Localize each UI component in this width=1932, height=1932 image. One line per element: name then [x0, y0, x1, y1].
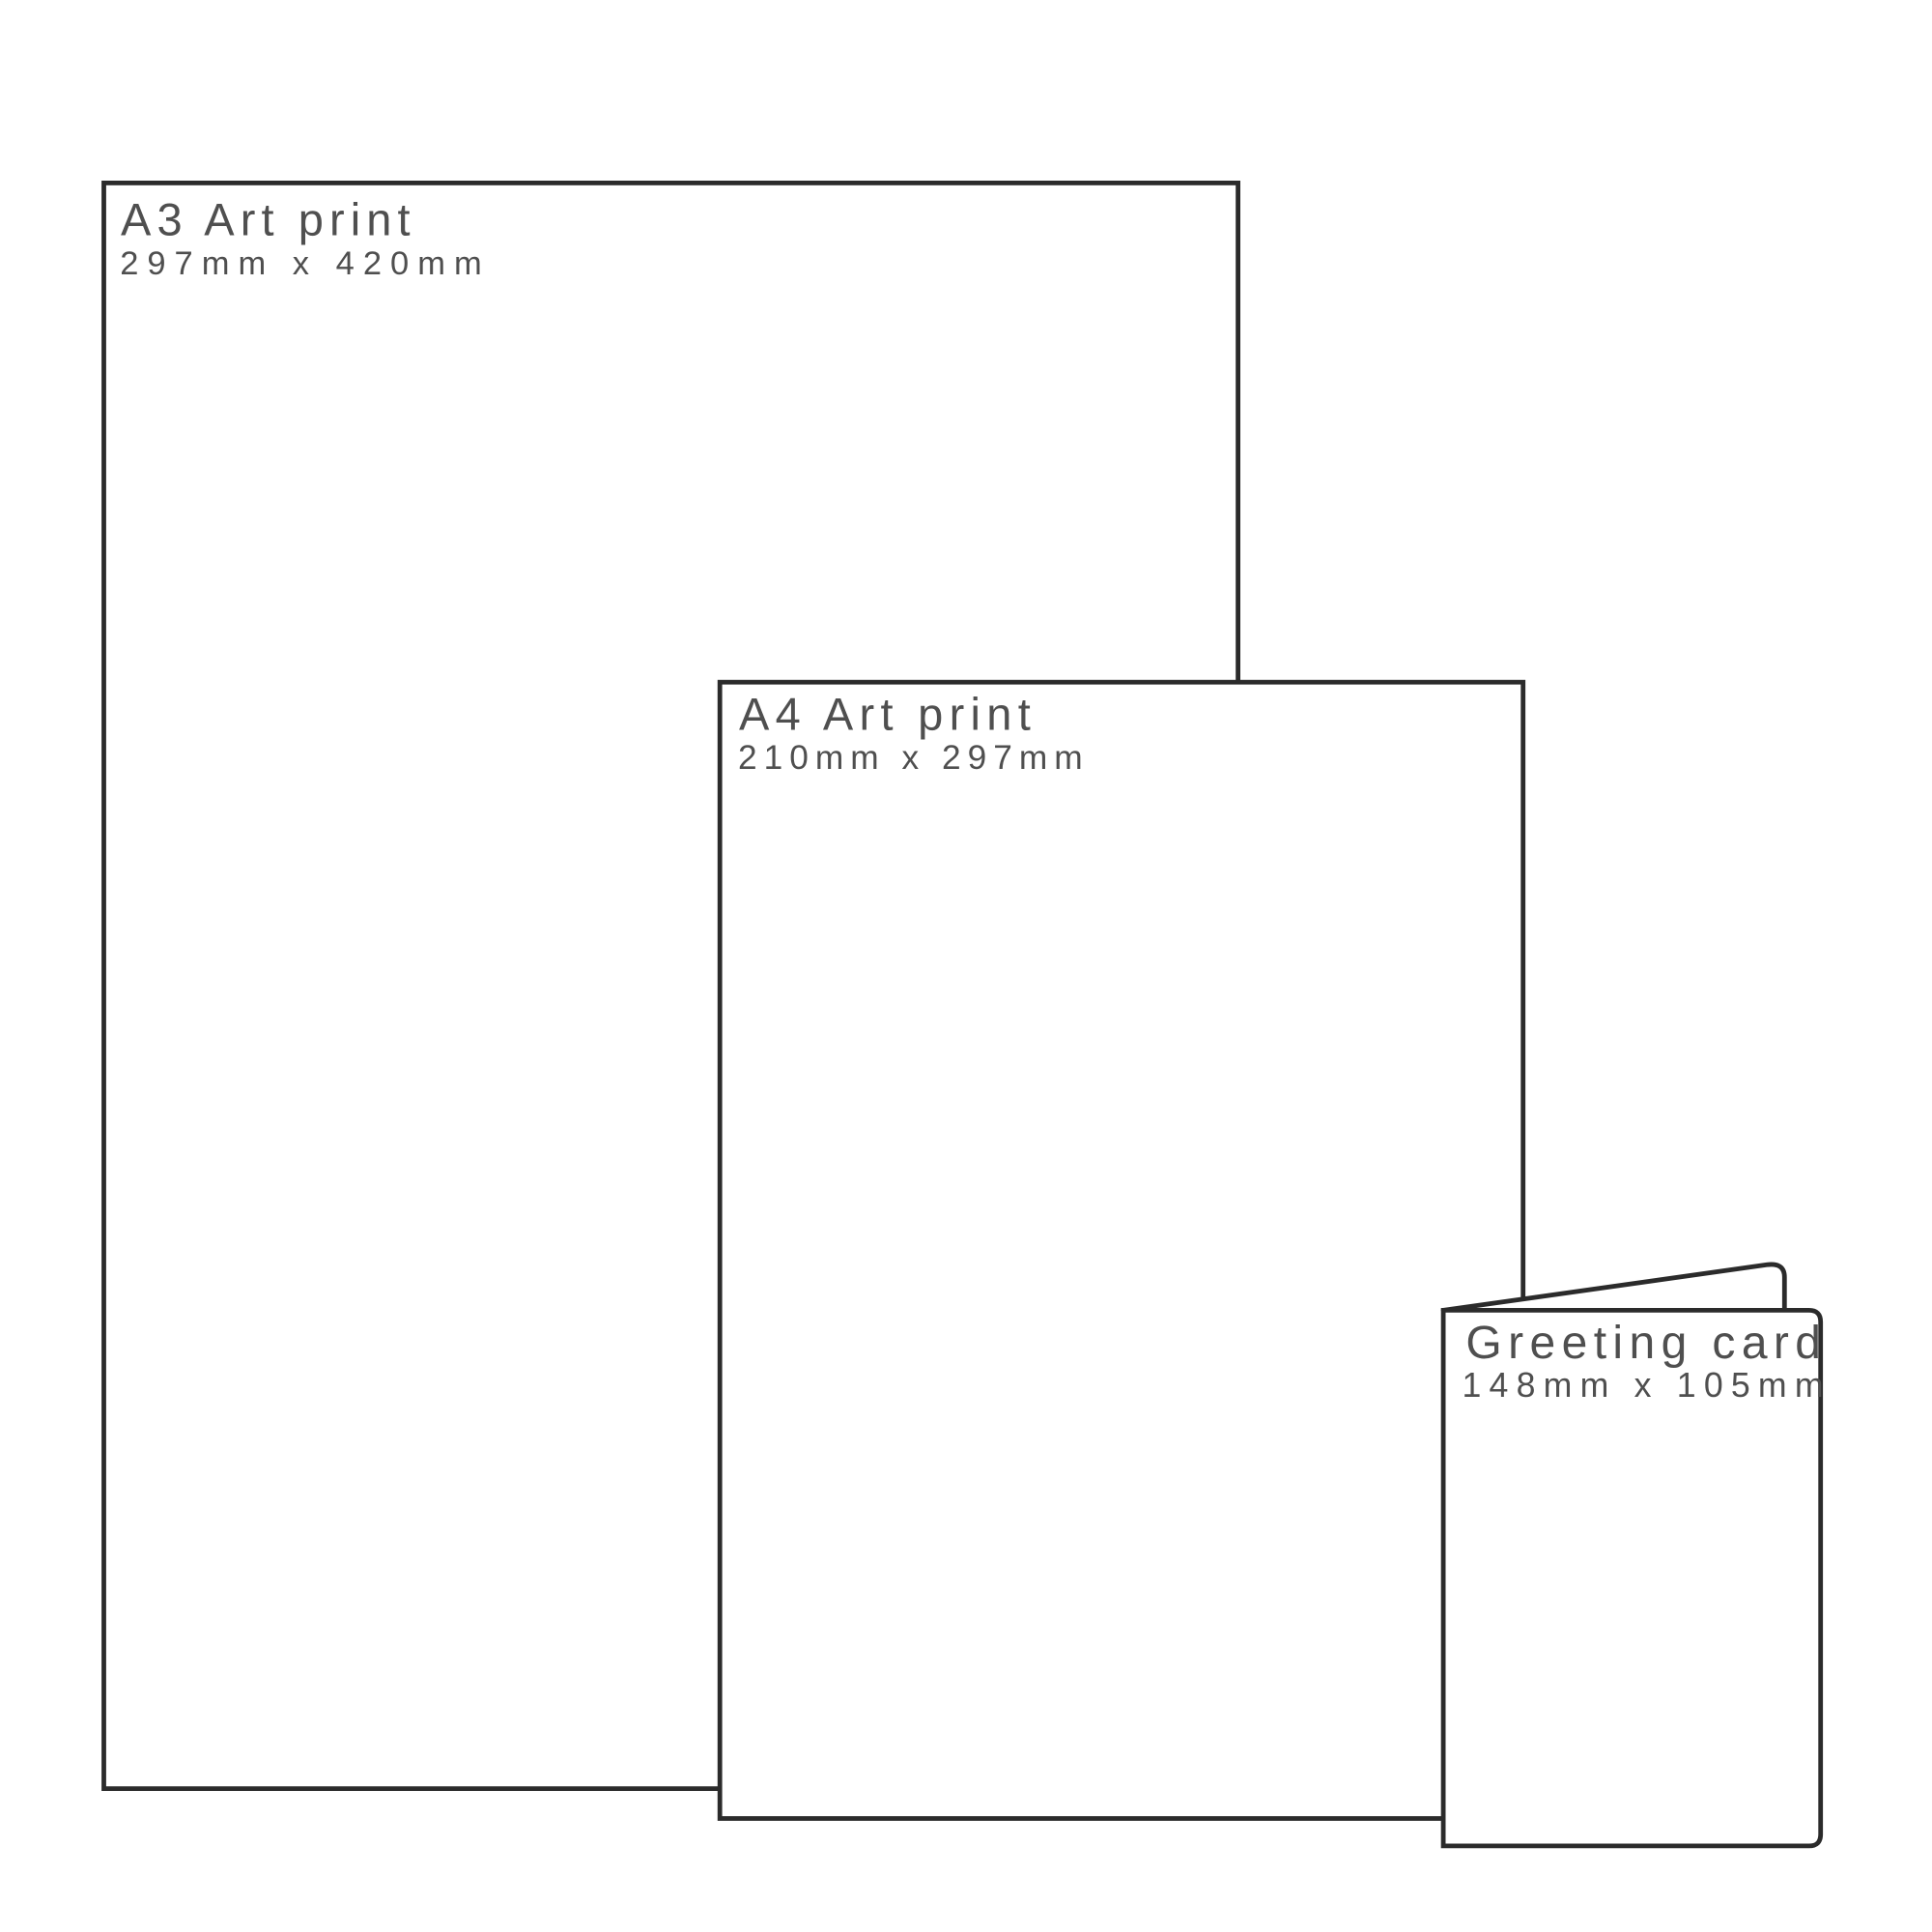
svg-text:148mm x 105mm: 148mm x 105mm	[1463, 1366, 1832, 1405]
svg-text:A4 Art print: A4 Art print	[739, 689, 1037, 740]
svg-text:A3 Art print: A3 Art print	[121, 194, 416, 245]
svg-text:Greeting card: Greeting card	[1465, 1318, 1827, 1369]
svg-text:297mm x 420mm: 297mm x 420mm	[120, 245, 491, 282]
svg-text:210mm x 297mm: 210mm x 297mm	[738, 739, 1090, 777]
